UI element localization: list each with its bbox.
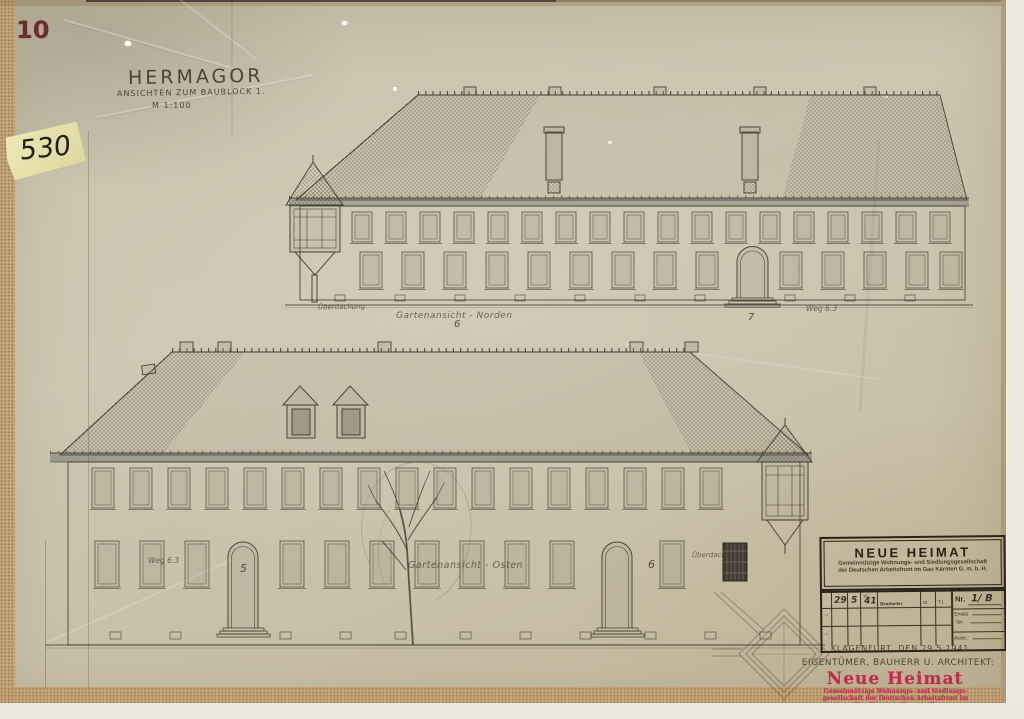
footer-place-date: KLAGENFURT, DEN 29.5.1941 bbox=[825, 644, 975, 653]
fuer-line bbox=[970, 622, 1001, 623]
stamp-header-box: NEUE HEIMAT Gemeinnützige Wohnungs- und … bbox=[819, 535, 1006, 591]
table-line bbox=[847, 593, 849, 647]
ersatz-label: Ersatz bbox=[954, 611, 968, 617]
sheet-corner-number: 10 bbox=[16, 16, 49, 44]
table-line bbox=[860, 593, 862, 647]
top-elevation-number-right: 7 bbox=[748, 312, 754, 323]
drawing-scale: M 1:100 bbox=[152, 101, 192, 110]
entrance-door-right bbox=[591, 542, 644, 637]
row-arrow: → bbox=[823, 631, 829, 637]
table-line bbox=[951, 608, 1004, 610]
ti-label: T.I. bbox=[938, 600, 945, 606]
bottom-elevation-number-right: 6 bbox=[648, 558, 655, 571]
entrance-door bbox=[725, 247, 780, 308]
stamp-header-inner: NEUE HEIMAT Gemeinnützige Wohnungs- und … bbox=[823, 539, 1001, 587]
date-year-value: 41 bbox=[864, 596, 877, 606]
ground-window-row bbox=[93, 541, 686, 589]
row-arrow: → bbox=[823, 612, 829, 618]
eave-shadow bbox=[50, 452, 812, 462]
table-line bbox=[831, 593, 833, 647]
paper-left-torn-edge bbox=[0, 0, 15, 703]
roof bbox=[60, 350, 808, 455]
top-elevation-right-label: Weg 6.3 bbox=[806, 304, 837, 313]
ground-window-row bbox=[358, 252, 964, 290]
footer-red-company-stamp: Neue Heimat bbox=[800, 669, 990, 689]
sticky-note-number: 530 bbox=[19, 130, 71, 167]
date-month-value: 5 bbox=[851, 596, 857, 606]
scanned-drawing-sheet: 10 530 HERMAGOR ANSICHTEN ZUM BAUBLOCK 1… bbox=[0, 0, 1024, 719]
bottom-elevation-left-label: Weg 6.3 bbox=[148, 556, 179, 565]
bottom-elevation-caption: Gartenansicht - Osten bbox=[408, 560, 523, 571]
table-line bbox=[920, 592, 922, 646]
nr-label: Nr. bbox=[955, 594, 965, 603]
top-elevation-number-center: 6 bbox=[454, 319, 460, 330]
fuer-label: für: bbox=[956, 619, 963, 625]
roof bbox=[296, 93, 967, 200]
table-line bbox=[935, 592, 937, 646]
upper-window-row bbox=[90, 468, 724, 510]
scan-background-bottom bbox=[0, 703, 1024, 719]
scan-background-right bbox=[1006, 0, 1024, 719]
nr-value: 1/ B bbox=[971, 593, 993, 604]
footer-owner-line: EIGENTÜMER, BAUHERR U. ARCHITEKT: bbox=[798, 658, 998, 668]
table-line bbox=[951, 592, 953, 646]
stamp-subline-2: der Deutschen Arbeitsfront im Gau Kärnte… bbox=[828, 566, 997, 574]
ersatz-line bbox=[972, 614, 1001, 615]
table-line bbox=[951, 631, 1004, 633]
paper-speck bbox=[342, 21, 347, 25]
basement-vents bbox=[110, 632, 771, 639]
table-line bbox=[822, 625, 951, 627]
eave-shadow bbox=[289, 197, 969, 206]
company-stamp-box: NEUE HEIMAT Gemeinnützige Wohnungs- und … bbox=[819, 535, 1006, 653]
bearbeiter-label: Bearbeiter bbox=[880, 601, 902, 606]
bottom-elevation-number-left: 5 bbox=[240, 562, 247, 575]
shuttered-dark-window bbox=[723, 543, 747, 581]
red-line-2: gesellschaft der Deutschen Arbeitsfront … bbox=[798, 695, 993, 702]
nr-underline bbox=[968, 604, 1001, 605]
top-edge-line bbox=[86, 0, 556, 2]
paper-speck bbox=[125, 41, 131, 46]
table-line bbox=[877, 592, 879, 646]
table-line bbox=[822, 607, 951, 609]
top-elevation-left-label: Überdachung bbox=[318, 303, 365, 312]
top-edge-line-faint bbox=[556, 0, 1004, 2]
ausb-label: Ausb.: bbox=[954, 635, 968, 641]
ausb-line bbox=[972, 638, 1001, 639]
date-day-value: 29 bbox=[834, 596, 847, 606]
top-elevation-drawing bbox=[285, 85, 975, 315]
bottom-elevation-right-label: Überdachung bbox=[692, 551, 739, 560]
upper-window-row bbox=[350, 212, 952, 244]
red-line-1: Gemeinnützige Wohnungs- und Siedlungs- bbox=[798, 688, 993, 695]
drawing-title: HERMAGOR bbox=[128, 65, 264, 89]
stamp-company-name: NEUE HEIMAT bbox=[824, 544, 1000, 561]
entrance-door-left bbox=[217, 542, 270, 637]
m-label: m. bbox=[923, 600, 929, 606]
